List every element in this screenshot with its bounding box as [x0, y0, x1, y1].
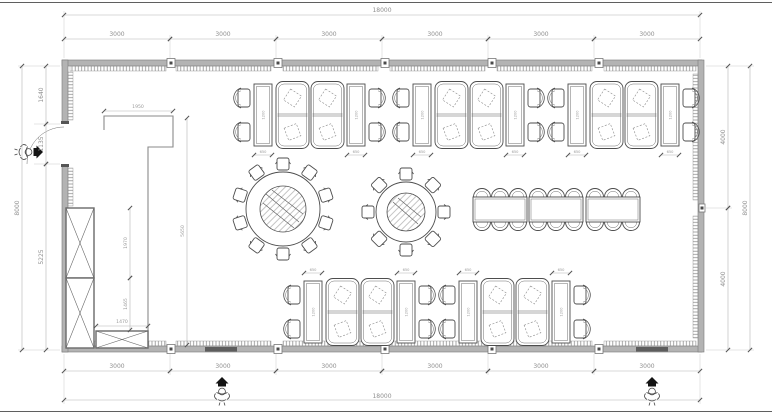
dim-label: 650 [558, 268, 566, 272]
storage-cabinets [66, 208, 148, 348]
dim-label: 3000 [109, 363, 124, 370]
dim-label: 18000 [372, 7, 391, 14]
dim-label: 1950 [132, 104, 144, 110]
dim-label: 650 [419, 150, 427, 154]
dim-label: 3000 [639, 31, 654, 38]
dim-label: 3000 [215, 31, 230, 38]
dim-label: 8000 [14, 200, 21, 215]
dim-label: 3000 [321, 363, 336, 370]
dim-label: 3000 [639, 363, 654, 370]
dim-label: 8000 [742, 200, 749, 215]
dim-label: 5225 [38, 249, 45, 264]
dim-label: 1970 [123, 237, 129, 249]
dim-label: 4000 [720, 271, 727, 286]
dim-label: 3000 [109, 31, 124, 38]
dimensions-right: 4000 4000 8000 [706, 66, 754, 350]
dim-label: 3000 [427, 31, 442, 38]
entrance-mat-right [636, 347, 668, 352]
dim-label: 1135 [38, 136, 45, 151]
dim-label: 650 [260, 150, 268, 154]
dim-label: 650 [512, 150, 520, 154]
bar-counter [104, 116, 173, 347]
person-entry-bottom-left [215, 377, 230, 406]
dim-label: 650 [353, 150, 361, 154]
floorplan-drawing: 1200 [0, 0, 772, 414]
dimensions-left: 1640 1135 5225 8000 [14, 66, 60, 350]
dim-label: 5650 [180, 225, 186, 237]
floorplan-sheet: 1200 [0, 0, 772, 414]
dim-label: 3000 [533, 31, 548, 38]
dim-label: 4000 [720, 129, 727, 144]
round-table-small [362, 168, 450, 256]
dim-label: 1465 [123, 298, 129, 310]
dimensions-bottom: 3000 3000 3000 3000 3000 3000 18000 [64, 354, 700, 404]
dim-label: 650 [667, 150, 675, 154]
dim-label: 650 [403, 268, 411, 272]
booth-seating-bottom [284, 279, 591, 346]
banquet-table [473, 189, 640, 231]
dim-label: 3000 [427, 363, 442, 370]
dim-label: 650 [465, 268, 473, 272]
dim-label: 650 [310, 268, 318, 272]
round-table-large [232, 158, 334, 260]
booth-seating-top [234, 82, 700, 149]
dim-label: 1470 [116, 319, 128, 325]
entry-door [27, 121, 70, 167]
dimensions-top: 18000 3000 3000 3000 3000 3000 3000 [64, 7, 700, 58]
door-swing-arc [27, 127, 64, 164]
entrance-mat-left [205, 347, 237, 352]
dim-label: 650 [574, 150, 582, 154]
dim-label: 3000 [215, 363, 230, 370]
dim-label: 18000 [372, 393, 391, 400]
dim-label: 3000 [533, 363, 548, 370]
dim-label: 1640 [38, 87, 45, 102]
person-entry-bottom-right [645, 377, 660, 406]
dim-label: 3000 [321, 31, 336, 38]
